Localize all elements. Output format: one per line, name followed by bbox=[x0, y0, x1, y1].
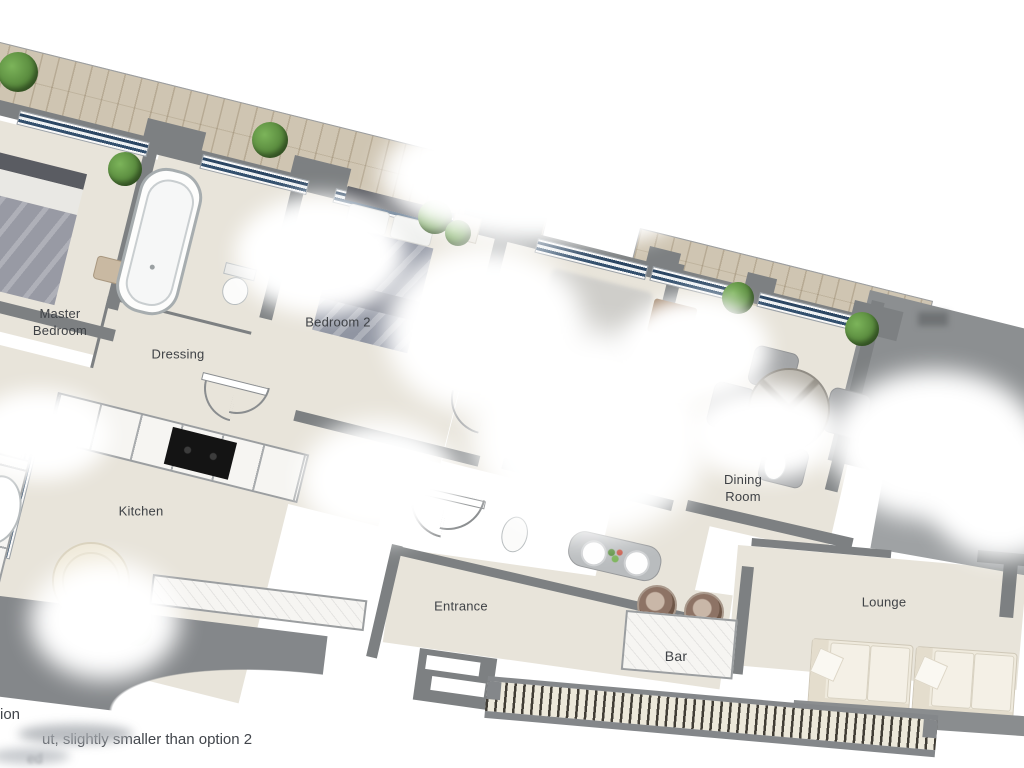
console-flowers bbox=[603, 544, 627, 566]
blur-smudge bbox=[560, 150, 690, 240]
topiary-bush bbox=[252, 122, 288, 158]
blur-smudge bbox=[235, 195, 405, 315]
step bbox=[425, 655, 480, 676]
blur-smudge bbox=[30, 560, 180, 680]
wall-smudge bbox=[918, 312, 948, 326]
bar-counter bbox=[621, 610, 738, 680]
dining-room-label: Dining Room bbox=[724, 472, 762, 506]
balustrade-post bbox=[922, 719, 938, 738]
caption-line-1: ion bbox=[0, 706, 20, 723]
caption-smudge bbox=[0, 748, 70, 764]
floor-plan-canvas: Master Bedroom Dressing Bedroom 2 Kitche… bbox=[0, 0, 1024, 768]
step bbox=[430, 676, 485, 697]
topiary-bush bbox=[108, 152, 142, 186]
entrance-label: Entrance bbox=[434, 599, 488, 616]
topiary-bush bbox=[845, 312, 879, 346]
entry-steps-block bbox=[413, 648, 497, 710]
blur-smudge bbox=[690, 385, 840, 480]
cooktop bbox=[164, 427, 237, 480]
bar-label: Bar bbox=[665, 647, 687, 665]
caption-smudge bbox=[18, 724, 133, 744]
sofa-cushion bbox=[867, 645, 911, 704]
sofa-cushion bbox=[971, 653, 1015, 712]
master-bedroom-label: Master Bedroom bbox=[33, 306, 87, 340]
bedroom2-label: Bedroom 2 bbox=[305, 315, 370, 332]
blur-smudge bbox=[300, 420, 460, 540]
kitchen-label: Kitchen bbox=[119, 504, 164, 521]
dressing-label: Dressing bbox=[152, 347, 205, 364]
balustrade-post bbox=[486, 681, 502, 700]
lounge-label: Lounge bbox=[862, 595, 907, 612]
